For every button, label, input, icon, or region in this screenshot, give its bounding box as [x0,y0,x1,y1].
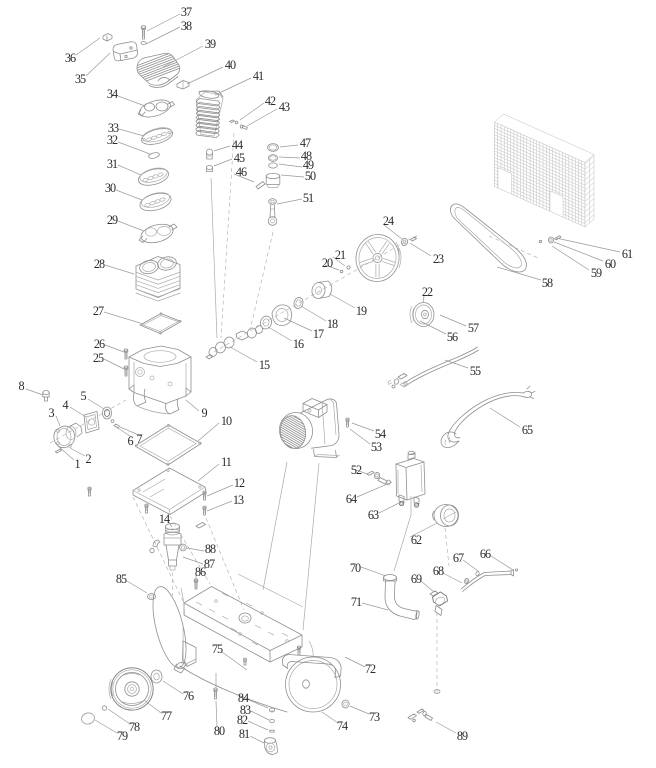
svg-text:77: 77 [161,709,172,723]
svg-text:85: 85 [116,572,127,586]
svg-text:53: 53 [371,440,382,454]
svg-text:51: 51 [303,191,314,205]
svg-text:23: 23 [433,252,444,266]
svg-text:19: 19 [356,304,367,318]
svg-text:28: 28 [94,257,105,271]
svg-text:38: 38 [181,19,192,33]
svg-text:54: 54 [375,427,386,441]
svg-text:44: 44 [232,138,243,152]
svg-text:73: 73 [369,710,380,724]
svg-text:67: 67 [453,551,464,565]
svg-text:56: 56 [447,330,458,344]
svg-text:83: 83 [240,703,251,717]
svg-text:26: 26 [94,337,105,351]
svg-text:47: 47 [300,136,311,150]
svg-text:34: 34 [107,87,118,101]
svg-text:16: 16 [293,337,304,351]
svg-text:80: 80 [214,724,225,738]
svg-text:61: 61 [622,247,633,261]
svg-text:11: 11 [221,455,232,469]
svg-text:68: 68 [433,564,444,578]
svg-text:55: 55 [470,364,481,378]
svg-text:35: 35 [75,72,86,86]
svg-text:88: 88 [205,542,216,556]
svg-text:10: 10 [221,414,232,428]
svg-text:84: 84 [238,691,249,705]
svg-text:76: 76 [183,689,194,703]
svg-text:24: 24 [383,214,394,228]
svg-text:31: 31 [107,157,118,171]
svg-text:30: 30 [105,181,116,195]
svg-text:43: 43 [279,100,290,114]
svg-text:40: 40 [225,58,236,72]
svg-text:87: 87 [204,557,215,571]
svg-text:15: 15 [259,358,270,372]
svg-text:62: 62 [411,533,422,547]
svg-text:66: 66 [480,547,491,561]
svg-text:20: 20 [322,256,333,270]
svg-text:21: 21 [335,248,346,262]
svg-text:22: 22 [422,285,433,299]
svg-text:89: 89 [457,729,468,743]
svg-text:60: 60 [605,257,616,271]
svg-text:46: 46 [236,165,247,179]
svg-text:64: 64 [346,492,357,506]
svg-text:12: 12 [234,476,245,490]
svg-text:81: 81 [239,727,250,741]
svg-text:71: 71 [351,595,362,609]
svg-text:78: 78 [129,720,140,734]
svg-text:27: 27 [93,304,104,318]
svg-text:13: 13 [233,493,244,507]
svg-text:17: 17 [313,327,324,341]
svg-text:59: 59 [591,266,602,280]
svg-text:37: 37 [181,5,192,19]
svg-text:14: 14 [159,512,170,526]
svg-text:52: 52 [351,463,362,477]
svg-text:42: 42 [265,94,276,108]
svg-text:36: 36 [65,51,76,65]
svg-text:32: 32 [107,133,118,147]
svg-text:39: 39 [205,37,216,51]
svg-text:33: 33 [108,121,119,135]
svg-text:57: 57 [468,321,479,335]
svg-text:41: 41 [253,69,264,83]
svg-text:25: 25 [93,351,104,365]
svg-text:72: 72 [365,662,376,676]
svg-text:69: 69 [411,572,422,586]
svg-text:75: 75 [212,642,223,656]
svg-text:79: 79 [117,729,128,743]
svg-text:65: 65 [522,423,533,437]
svg-text:50: 50 [305,169,316,183]
svg-text:58: 58 [542,276,553,290]
svg-text:74: 74 [337,719,348,733]
svg-text:63: 63 [368,508,379,522]
svg-text:18: 18 [327,317,338,331]
svg-text:29: 29 [107,213,118,227]
svg-text:70: 70 [350,561,361,575]
svg-text:45: 45 [234,151,245,165]
